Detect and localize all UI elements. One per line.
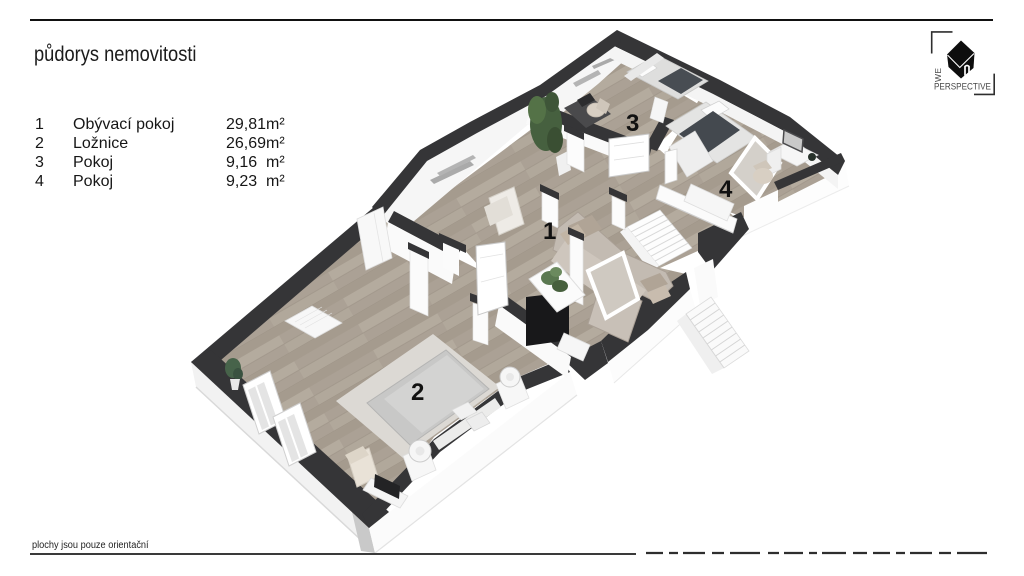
svg-text:WE: WE: [933, 68, 943, 82]
svg-text:PERSPECTIVE: PERSPECTIVE: [934, 82, 991, 92]
